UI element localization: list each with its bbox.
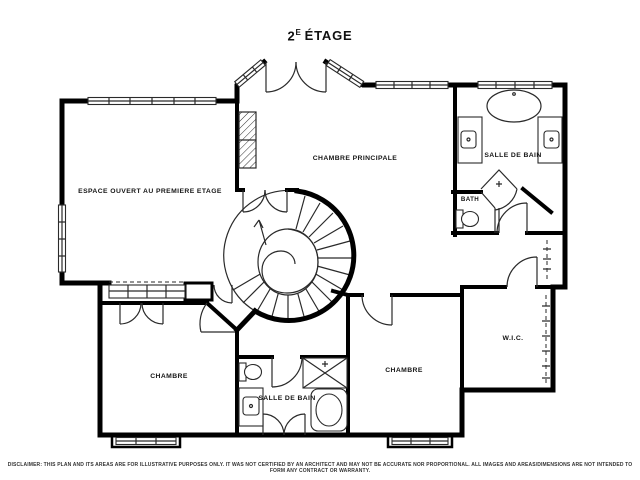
open-to-below-railing <box>109 282 185 298</box>
landing-pillar <box>185 283 212 300</box>
closet-doors-left-bedroom <box>120 303 163 324</box>
window-top-left <box>88 98 216 105</box>
double-doors-stair-landing <box>243 190 287 212</box>
french-doors-bay <box>266 62 326 92</box>
room-label-espace-ouvert: ESPACE OUVERT AU PREMIERE ETAGE <box>78 188 222 195</box>
window-bay-right-diagonal <box>326 60 363 88</box>
window-bay-left-diagonal <box>235 60 266 87</box>
closet-rod-wic <box>542 295 550 385</box>
door-bath-vestibule <box>497 203 527 233</box>
window-left-wall <box>59 205 66 272</box>
disclaimer-text: DISCLAIMER: THIS PLAN AND ITS AREAS ARE … <box>0 462 640 474</box>
title-number: 2 <box>288 28 296 43</box>
window-bay-bottom-left <box>116 438 176 445</box>
room-label-bath: BATH <box>461 196 479 203</box>
room-label-chambre-droite: CHAMBRE <box>385 367 423 374</box>
shower-lower-bathroom <box>303 358 347 388</box>
door-left-bedroom <box>200 303 235 332</box>
title-superscript: E <box>296 28 302 37</box>
room-label-chambre-principale: CHAMBRE PRINCIPALE <box>313 155 398 162</box>
bathtub-lower <box>311 389 347 431</box>
room-label-wic: W.I.C. <box>503 335 524 342</box>
door-right-bedroom <box>362 295 392 325</box>
page-title: 2EÉTAGE <box>0 28 640 43</box>
window-bay-bottom-right <box>392 438 448 445</box>
title-text: ÉTAGE <box>305 28 353 43</box>
window-master-top <box>376 82 448 89</box>
vanity-lower-bathroom <box>239 388 263 426</box>
double-doors-lower-bathroom <box>263 414 305 435</box>
floor-plan-page: 2EÉTAGE <box>0 0 640 480</box>
shower-door-upper-bathroom <box>481 170 517 210</box>
pocket-door-bath <box>481 192 499 233</box>
door-lower-bathroom <box>272 357 302 387</box>
toilet-lower-bathroom <box>239 363 262 381</box>
toilet-bath <box>456 210 479 228</box>
floor-plan-drawing: ESPACE OUVERT AU PREMIERE ETAGE CHAMBRE … <box>0 0 640 480</box>
room-label-salle-de-bain-bas: SALLE DE BAIN <box>258 395 315 402</box>
door-wic <box>507 257 537 287</box>
vanity-upper-left <box>458 117 482 163</box>
room-label-salle-de-bain-haut: SALLE DE BAIN <box>484 152 541 159</box>
window-bathroom-top <box>478 82 552 89</box>
stair-wall-connector <box>237 311 255 330</box>
closet-rod-hallway <box>543 240 551 282</box>
door-landing-hall <box>214 285 232 303</box>
room-label-chambre-gauche: CHAMBRE <box>150 373 188 380</box>
